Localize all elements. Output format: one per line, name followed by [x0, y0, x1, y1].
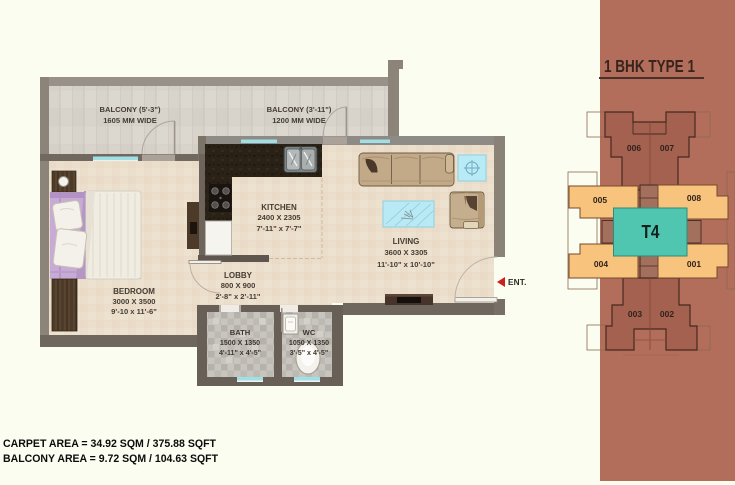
- svg-text:ENT.: ENT.: [508, 278, 527, 287]
- svg-text:800 X 900: 800 X 900: [221, 281, 256, 290]
- svg-text:BATH: BATH: [230, 328, 251, 337]
- svg-text:LOBBY: LOBBY: [224, 271, 253, 280]
- svg-text:002: 002: [660, 309, 674, 319]
- svg-text:006: 006: [627, 143, 641, 153]
- svg-text:BALCONY (3'-11"): BALCONY (3'-11"): [267, 105, 332, 114]
- svg-text:T4: T4: [642, 222, 660, 242]
- svg-text:1605 MM WIDE: 1605 MM WIDE: [103, 116, 157, 125]
- svg-text:1 BHK TYPE 1: 1 BHK TYPE 1: [604, 56, 695, 76]
- svg-text:9'-10 x 11'-6": 9'-10 x 11'-6": [111, 307, 157, 316]
- svg-text:LIVING: LIVING: [393, 237, 420, 246]
- svg-text:BALCONY (5'-3"): BALCONY (5'-3"): [100, 105, 161, 114]
- svg-text:1050 X 1350: 1050 X 1350: [289, 339, 329, 347]
- svg-text:004: 004: [594, 259, 608, 269]
- svg-text:BEDROOM: BEDROOM: [113, 287, 155, 296]
- svg-text:007: 007: [660, 143, 674, 153]
- svg-text:3000 X 3500: 3000 X 3500: [112, 297, 155, 306]
- svg-text:CARPET AREA = 34.92 SQM / 375.: CARPET AREA = 34.92 SQM / 375.88 SQFT: [3, 438, 216, 450]
- svg-text:11'-10" x 10'-10": 11'-10" x 10'-10": [377, 260, 435, 269]
- svg-text:008: 008: [687, 193, 701, 203]
- svg-text:1200 MM WIDE: 1200 MM WIDE: [272, 116, 326, 125]
- svg-text:WC: WC: [303, 328, 316, 337]
- svg-text:003: 003: [628, 309, 642, 319]
- svg-text:2400 X 2305: 2400 X 2305: [257, 213, 301, 222]
- svg-text:3'-5" x 4'-5": 3'-5" x 4'-5": [290, 349, 329, 357]
- svg-text:2'-8" x 2'-11": 2'-8" x 2'-11": [215, 292, 260, 301]
- svg-text:3600 X 3305: 3600 X 3305: [384, 248, 428, 257]
- svg-text:BALCONY AREA = 9.72 SQM / 104.: BALCONY AREA = 9.72 SQM / 104.63 SQFT: [3, 453, 218, 465]
- svg-text:7'-11" x 7'-7": 7'-11" x 7'-7": [256, 224, 301, 233]
- svg-text:1500 X 1350: 1500 X 1350: [220, 339, 260, 347]
- svg-text:005: 005: [593, 195, 607, 205]
- svg-text:4'-11" x 4'-5": 4'-11" x 4'-5": [219, 349, 261, 357]
- svg-text:001: 001: [687, 259, 701, 269]
- svg-text:KITCHEN: KITCHEN: [261, 203, 297, 212]
